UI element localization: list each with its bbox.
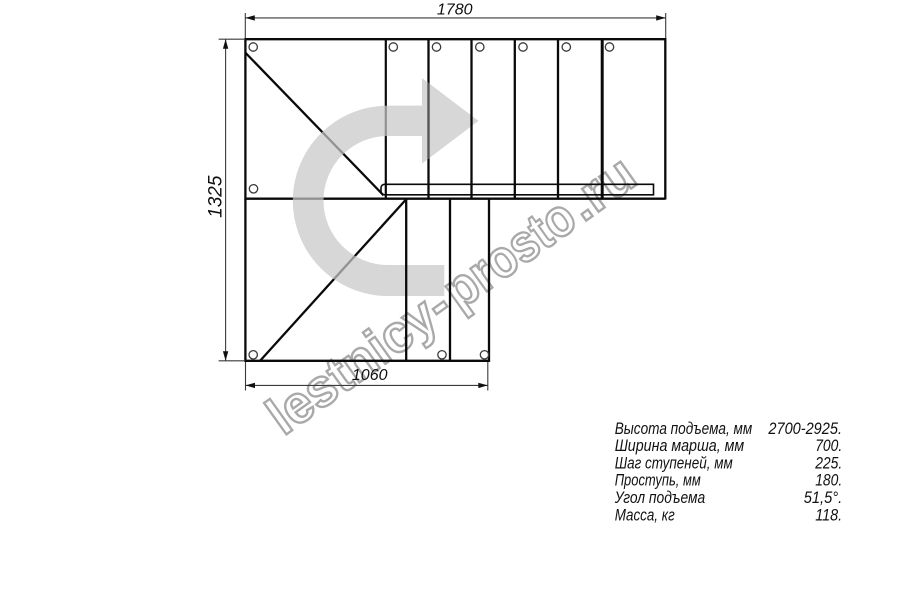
svg-text:Ширина марша, мм: Ширина марша, мм <box>615 436 745 455</box>
svg-text:1780: 1780 <box>437 2 473 19</box>
svg-text:2700-2925.: 2700-2925. <box>768 419 842 438</box>
svg-text:Угол подъема: Угол подъема <box>614 488 705 507</box>
svg-text:700.: 700. <box>815 436 842 455</box>
svg-text:1060: 1060 <box>352 367 388 384</box>
svg-text:118.: 118. <box>815 505 842 524</box>
svg-text:51,5°.: 51,5°. <box>804 488 843 507</box>
svg-text:Проступь, мм: Проступь, мм <box>615 471 701 490</box>
svg-text:Шаг ступеней, мм: Шаг ступеней, мм <box>615 453 733 472</box>
svg-text:1325: 1325 <box>206 175 227 218</box>
svg-text:Масса, кг: Масса, кг <box>615 505 675 524</box>
svg-text:Высота подъема, мм: Высота подъема, мм <box>615 419 753 438</box>
svg-text:180.: 180. <box>815 471 842 490</box>
svg-text:225.: 225. <box>814 453 842 472</box>
